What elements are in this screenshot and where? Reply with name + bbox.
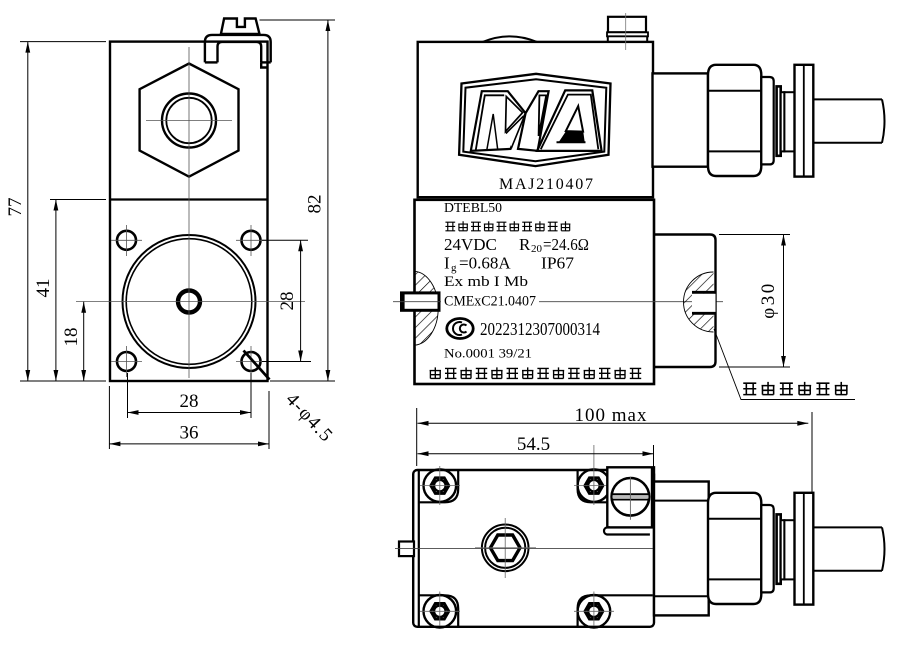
svg-text:g: g: [451, 262, 457, 274]
svg-text:28: 28: [180, 391, 199, 412]
svg-text:36: 36: [180, 423, 199, 444]
svg-text:=0.68A: =0.68A: [459, 254, 511, 273]
svg-text:24VDC: 24VDC: [444, 235, 497, 254]
svg-text:Ex mb I Mb: Ex mb I Mb: [444, 274, 528, 290]
svg-text:18: 18: [61, 328, 82, 347]
svg-text:DTEBL50: DTEBL50: [444, 201, 502, 216]
svg-text:28: 28: [277, 292, 298, 311]
svg-text:No.0001 39/21: No.0001 39/21: [444, 346, 532, 361]
svg-text:IP67: IP67: [541, 254, 575, 273]
svg-text:100 max: 100 max: [575, 405, 648, 426]
svg-text:77: 77: [5, 198, 26, 217]
svg-text:CMExC21.0407: CMExC21.0407: [444, 294, 536, 310]
svg-text:54.5: 54.5: [517, 434, 550, 455]
svg-text:41: 41: [33, 279, 54, 298]
svg-text:MAJ210407: MAJ210407: [499, 176, 593, 193]
svg-text:82: 82: [305, 195, 326, 214]
svg-text:I: I: [444, 254, 450, 273]
svg-text:2022312307000314: 2022312307000314: [480, 319, 600, 339]
svg-text:R: R: [519, 235, 531, 254]
svg-text:=24.6Ω: =24.6Ω: [543, 235, 589, 254]
svg-text:φ30: φ30: [758, 281, 779, 318]
